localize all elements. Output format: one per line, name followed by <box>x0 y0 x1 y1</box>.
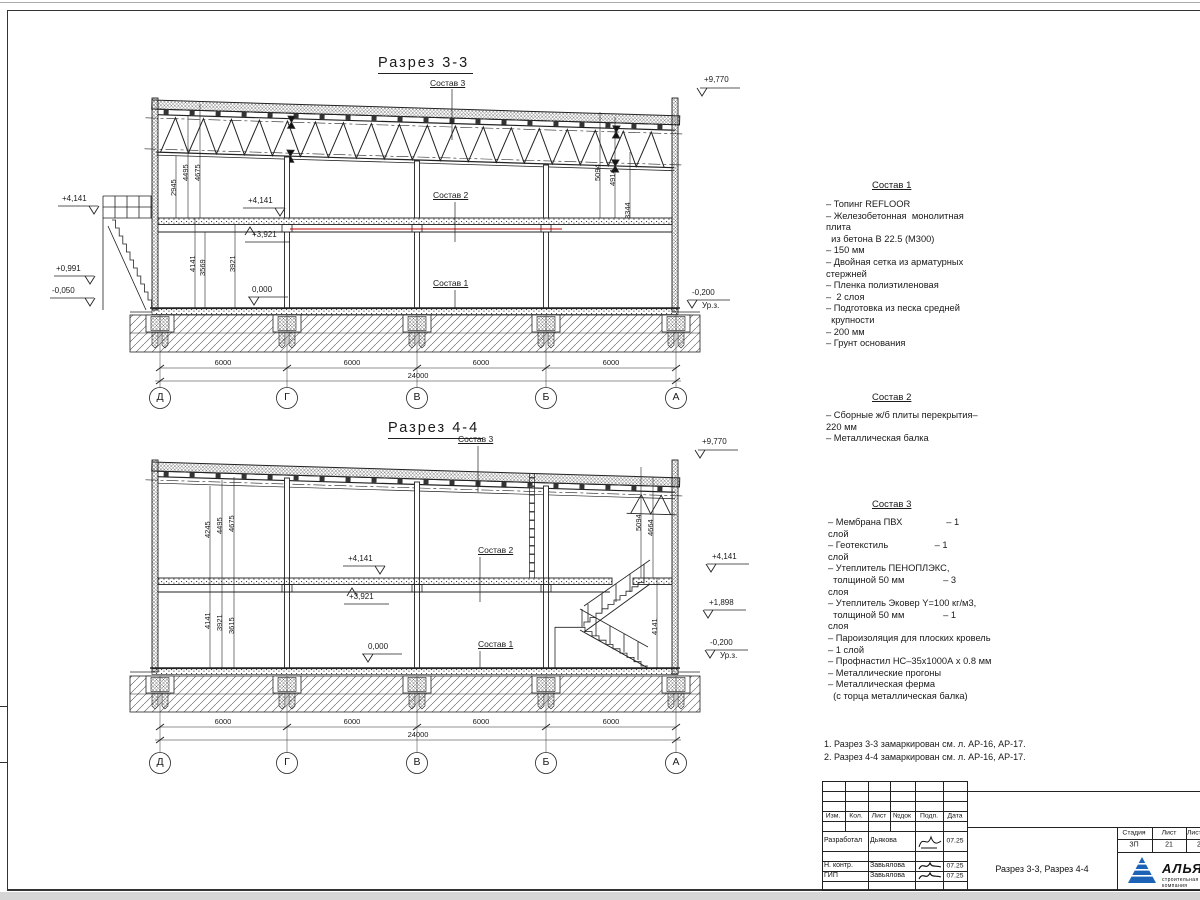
tb-col-ndok: №док <box>893 813 911 820</box>
vertical-dim: 4914 <box>609 169 617 186</box>
list-item: – Железобетонная монолитная <box>826 211 964 223</box>
list-item: – Утеплитель ПЕНОПЛЭКС, <box>828 563 991 575</box>
tb-stage-header: Стадия <box>1122 830 1145 837</box>
tb-doc-title: Разрез 3-3, Разрез 4-4 <box>995 864 1088 874</box>
elevation-value: +9,770 <box>702 438 727 446</box>
section2-sostav3-label: Состав 3 <box>458 435 493 444</box>
sostav1-list: – Топинг REFLOOR – Железобетонная моноли… <box>826 199 964 350</box>
grid-letter: Б <box>543 392 550 403</box>
span-dim: 6000 <box>603 718 620 726</box>
list-item: – Утеплитель Эковер Y=100 кг/м3, <box>828 598 991 610</box>
grid-letter: Д <box>156 392 163 403</box>
vertical-dim: 3344 <box>624 202 632 219</box>
list-item: – Двойная сетка из арматурных <box>826 257 964 269</box>
company-tagline: строительная компания <box>1162 877 1200 889</box>
span-dim: 6000 <box>215 718 232 726</box>
list-item: крупности <box>826 315 964 327</box>
span-dim: 6000 <box>344 718 361 726</box>
drawing-sheet: Разрез 3-3 Состав 3 Состав 2 Состав 1 +9… <box>0 0 1200 900</box>
total-dim: 24000 <box>408 731 429 739</box>
list-item: слоя <box>828 621 991 633</box>
sostav3-title: Состав 3 <box>872 500 911 510</box>
tb-role: Н. контр. <box>824 862 853 869</box>
list-item: – 200 мм <box>826 327 964 339</box>
tb-date: 07.25 <box>946 873 963 880</box>
frame-left <box>7 10 8 889</box>
section2-stairs <box>555 560 650 668</box>
list-item: слой <box>828 529 991 541</box>
signature <box>917 833 943 850</box>
section1-sostav2-label: Состав 2 <box>433 191 468 200</box>
list-item: – Профнастил НС–35х1000А х 0.8 мм <box>828 656 991 668</box>
tb-role: Разработал <box>824 837 862 844</box>
section1-exterior-stair <box>103 196 152 310</box>
list-item: – 1 слой <box>828 645 991 657</box>
section1-sostav1-label: Состав 1 <box>433 279 468 288</box>
grid-letter: Д <box>156 757 163 768</box>
ground-level-label: Ур.з. <box>720 652 737 660</box>
vertical-dim: 5094 <box>635 514 643 531</box>
span-dim: 6000 <box>215 359 232 367</box>
sostav2-title: Состав 2 <box>872 393 911 403</box>
desktop-strip <box>0 892 1200 900</box>
list-item: – Сборные ж/б плиты перекрытия– <box>826 410 978 422</box>
list-item: толщиной 50 мм – 1 <box>828 610 991 622</box>
section1-linework <box>50 88 740 409</box>
signature <box>917 871 943 882</box>
tb-role: ГИП <box>824 872 838 879</box>
list-item: из бетона В 22.5 (М300) <box>826 234 964 246</box>
elevation-value: +9,770 <box>704 76 729 84</box>
elevation-value: +4,141 <box>248 197 273 205</box>
vertical-dim: 3921 <box>229 255 237 272</box>
vertical-dim: 5094 <box>594 164 602 181</box>
tb-name: Завьялова <box>870 872 905 879</box>
section2-left-wall <box>152 460 158 672</box>
span-dim: 6000 <box>344 359 361 367</box>
span-dim: 6000 <box>603 359 620 367</box>
tb-col-kol: Кол. <box>849 813 862 820</box>
grid-letter: Г <box>284 392 290 403</box>
paper-edge <box>0 2 1200 3</box>
vertical-dim: 4141 <box>651 618 659 635</box>
grid-letter: В <box>413 757 420 768</box>
list-item: – Пароизоляция для плоских кровель <box>828 633 991 645</box>
company-logo-icon <box>1128 857 1158 885</box>
vertical-dim: 3615 <box>228 617 236 634</box>
list-item: – Мембрана ПВХ – 1 <box>828 517 991 529</box>
vertical-dim: 4664 <box>647 519 655 536</box>
note-line: 1. Разрез 3-3 замаркирован см. л. АР-16,… <box>824 738 1026 751</box>
list-item: слой <box>828 552 991 564</box>
company-name: АЛЬЯНС <box>1162 861 1200 876</box>
list-item: – Геотекстиль – 1 <box>828 540 991 552</box>
section2-right-wall <box>672 460 678 674</box>
list-item: плита <box>826 222 964 234</box>
elevation-value: +0,991 <box>56 265 81 273</box>
note-line: 2. Разрез 4-4 замаркирован см. л. АР-16,… <box>824 751 1026 764</box>
elevation-value: -0,200 <box>710 639 733 647</box>
tb-sheet-value: 21 <box>1165 842 1173 849</box>
sostav1-title: Состав 1 <box>872 181 911 191</box>
elevation-value: +1,898 <box>709 599 734 607</box>
list-item: – Грунт основания <box>826 338 964 350</box>
tb-name: Дьякова <box>870 837 897 844</box>
elevation-value: +4,141 <box>712 553 737 561</box>
tb-date: 07.25 <box>946 863 963 870</box>
vertical-dim: 4245 <box>204 521 212 538</box>
sostav3-list: – Мембрана ПВХ – 1 слой – Геотекстиль – … <box>828 517 991 703</box>
vertical-dim: 3921 <box>216 614 224 631</box>
title-block: Изм. Кол. Лист №док Подп. Дата Разработа… <box>822 781 1200 891</box>
list-item: толщиной 50 мм – 3 <box>828 575 991 587</box>
vertical-dim: 4495 <box>216 517 224 534</box>
vertical-dim: 4675 <box>194 164 202 181</box>
grid-letter: Г <box>284 757 290 768</box>
list-item: слоя <box>828 587 991 599</box>
vertical-dim: 4141 <box>189 255 197 272</box>
list-item: – Подготовка из песка средней <box>826 303 964 315</box>
list-item: – Металлические прогоны <box>828 668 991 680</box>
section1-floor-slab <box>158 218 672 225</box>
section1-right-wall <box>672 98 678 312</box>
grid-letter: В <box>413 392 420 403</box>
tb-col-izm: Изм. <box>826 813 841 820</box>
list-item: – 150 мм <box>826 245 964 257</box>
tb-col-podp: Подп. <box>920 813 938 820</box>
sheet-notes: 1. Разрез 3-3 замаркирован см. л. АР-16,… <box>824 738 1026 764</box>
section1-roof-truss <box>144 100 683 174</box>
list-item: – Пленка полиэтиленовая <box>826 280 964 292</box>
tb-col-data: Дата <box>947 813 962 820</box>
section1-sostav3-label: Состав 3 <box>430 79 465 88</box>
tb-stage-value: ЗП <box>1129 842 1138 849</box>
section2-sostav2-label: Состав 2 <box>478 546 513 555</box>
tb-sheets-header: Листов <box>1187 830 1200 837</box>
list-item: – Топинг REFLOOR <box>826 199 964 211</box>
tb-date: 07.25 <box>946 838 963 845</box>
section2-ladder <box>530 474 535 578</box>
list-item: – Металлическая балка <box>826 433 978 445</box>
elevation-value: +4,141 <box>348 555 373 563</box>
list-item: – Металлическая ферма <box>828 679 991 691</box>
vertical-dim: 4495 <box>182 164 190 181</box>
tb-sheet-header: Лист <box>1162 830 1177 837</box>
elevation-value: 0,000 <box>252 286 272 294</box>
span-dim: 6000 <box>473 718 490 726</box>
vertical-dim: 2945 <box>170 179 178 196</box>
drawing-canvas <box>0 0 1200 900</box>
span-dim: 6000 <box>473 359 490 367</box>
vertical-dim: 3569 <box>199 259 207 276</box>
elevation-value: +4,141 <box>62 195 87 203</box>
tb-col-list: Лист <box>872 813 887 820</box>
filing-mark <box>0 706 7 707</box>
section1-left-wall <box>152 98 158 310</box>
frame-top <box>7 10 1200 11</box>
sostav2-list: – Сборные ж/б плиты перекрытия– 220 мм –… <box>826 410 978 445</box>
vertical-dim: 4675 <box>228 515 236 532</box>
section1-title: Разрез 3-3 <box>378 56 473 74</box>
elevation-value: +3,921 <box>252 231 277 239</box>
total-dim: 24000 <box>408 372 429 380</box>
filing-mark <box>0 762 7 763</box>
tb-name: Завьялова <box>870 862 905 869</box>
elevation-value: 0,000 <box>368 643 388 651</box>
vertical-dim: 4141 <box>204 612 212 629</box>
elevation-value: +3,921 <box>349 593 374 601</box>
elevation-value: -0,050 <box>52 287 75 295</box>
section2-sostav1-label: Состав 1 <box>478 640 513 649</box>
list-item: – 2 слоя <box>826 292 964 304</box>
list-item: 220 мм <box>826 422 978 434</box>
list-item: стержней <box>826 269 964 281</box>
grid-letter: Б <box>543 757 550 768</box>
grid-letter: А <box>672 757 679 768</box>
grid-letter: А <box>672 392 679 403</box>
section2-floor-slab <box>158 578 612 585</box>
ground-level-label: Ур.з. <box>702 302 719 310</box>
elevation-value: -0,200 <box>692 289 715 297</box>
list-item: (с торца металлическая балка) <box>828 691 991 703</box>
